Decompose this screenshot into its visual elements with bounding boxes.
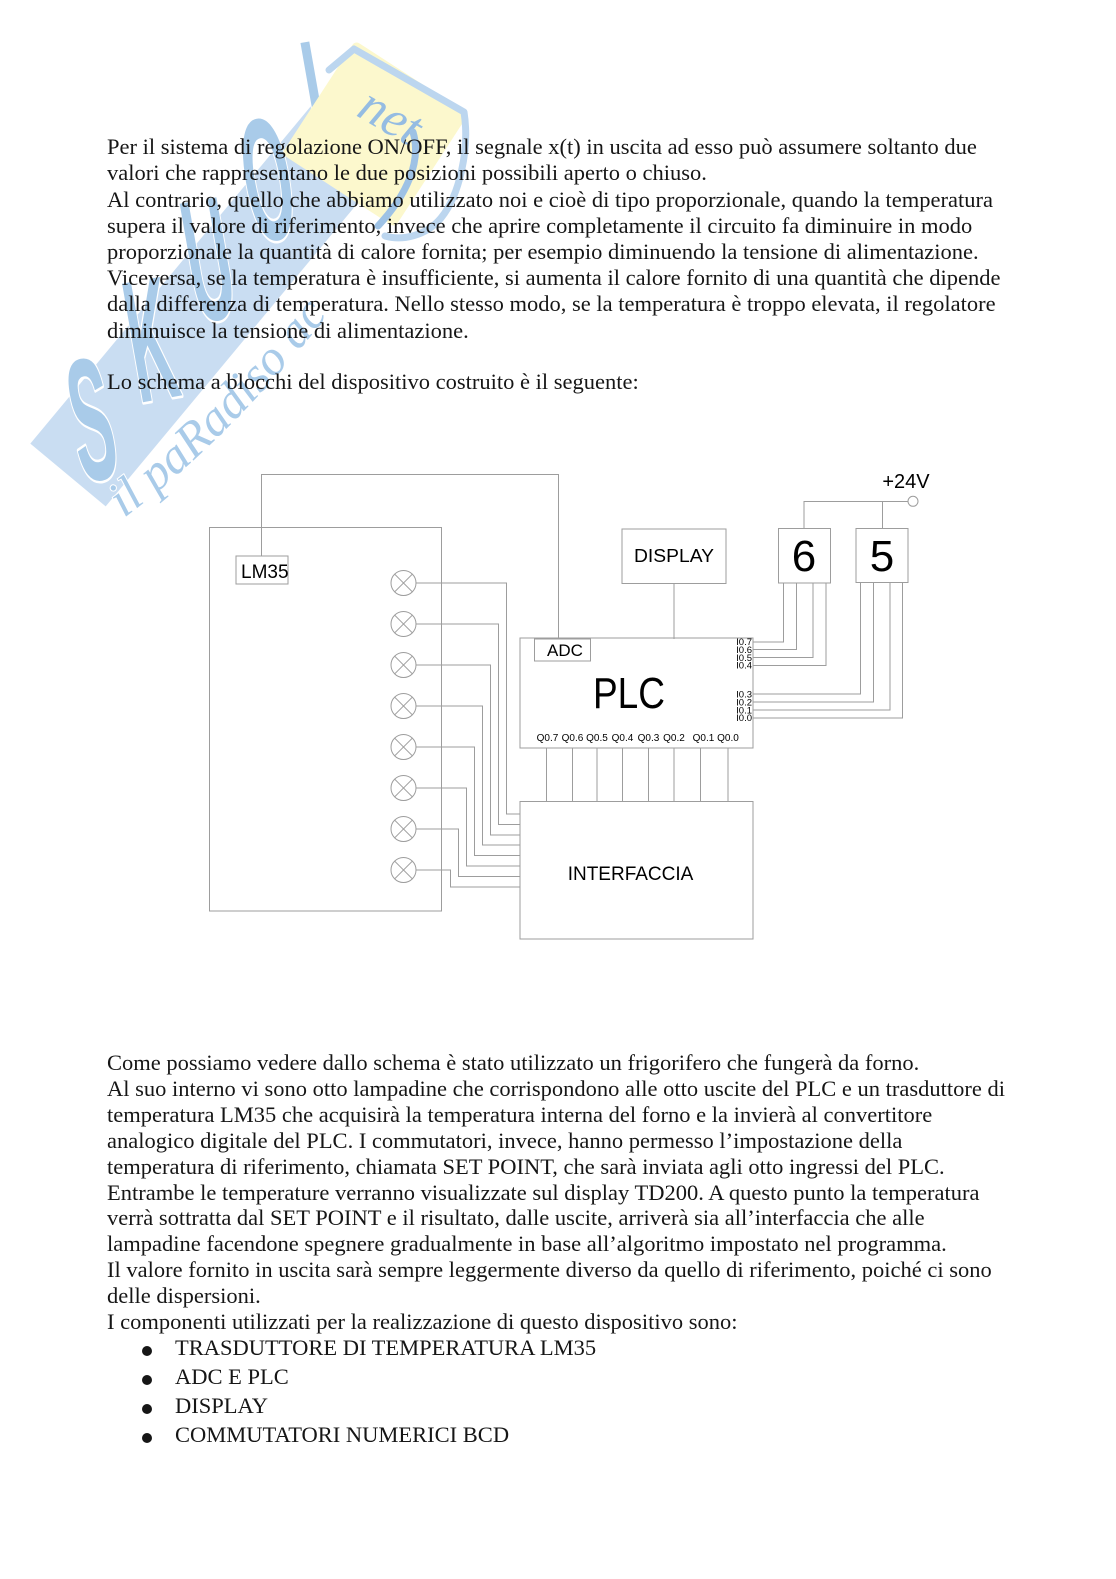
svg-text:Q0.6: Q0.6 (562, 733, 584, 744)
svg-text:+24V: +24V (882, 471, 930, 493)
svg-text:PLC: PLC (593, 669, 665, 718)
svg-text:Q0.0: Q0.0 (717, 733, 739, 744)
svg-text:Q0.1: Q0.1 (693, 733, 715, 744)
svg-text:DISPLAY: DISPLAY (634, 546, 714, 566)
svg-text:ADC: ADC (547, 641, 583, 660)
svg-text:6: 6 (792, 532, 816, 581)
svg-text:Q0.3: Q0.3 (638, 733, 660, 744)
svg-text:I0.4: I0.4 (736, 661, 752, 672)
svg-text:Q0.7: Q0.7 (537, 733, 559, 744)
svg-text:I0.0: I0.0 (736, 713, 752, 724)
svg-text:Q0.5: Q0.5 (586, 733, 608, 744)
svg-text:Q0.2: Q0.2 (663, 733, 685, 744)
svg-text:Q0.4: Q0.4 (612, 733, 634, 744)
svg-text:INTERFACCIA: INTERFACCIA (568, 864, 694, 885)
svg-text:LM35: LM35 (241, 562, 289, 583)
svg-text:5: 5 (870, 532, 894, 581)
